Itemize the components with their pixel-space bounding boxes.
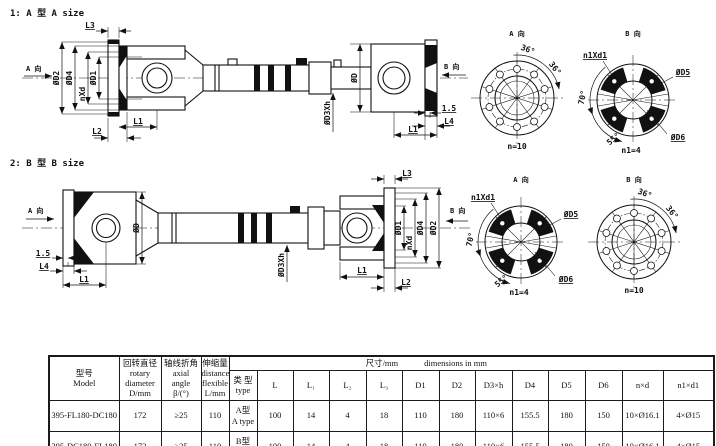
tube-section — [203, 58, 371, 94]
dim-cell: 18 — [366, 431, 402, 446]
dim-label-d6: ØD6 — [558, 274, 574, 284]
angle-label-36: 36° — [547, 60, 563, 77]
col-header-dim: D1 — [402, 370, 439, 400]
dim-label-d4: ØD4 — [415, 221, 425, 237]
dim-label-l3: L3 — [402, 169, 412, 178]
flex-header-en2: flexible — [202, 378, 229, 388]
shaft-b-drawing: A 向 1.5 L4 L1 ØD — [22, 169, 470, 292]
type-cell-en: A type — [230, 416, 257, 426]
angle-label-70: 70° — [577, 89, 589, 105]
flex-header-cn: 伸缩量 — [202, 358, 229, 368]
dim-label-l1-left: L1 — [133, 117, 143, 126]
col-header-dim: D6 — [585, 370, 622, 400]
dim-cell: 180 — [439, 400, 475, 431]
dim-cell: 155.5 — [512, 431, 548, 446]
dim-label-l2: L2 — [92, 127, 102, 136]
dim-label-d2: ØD2 — [428, 221, 438, 237]
type-cell-cn: B型 — [230, 436, 257, 446]
dim-label-d: ØD — [131, 223, 141, 234]
angle-cell: ≥25 — [161, 400, 201, 431]
col-header-dim: n1×d1 — [663, 370, 714, 400]
dim-cell: 110×6 — [475, 400, 512, 431]
dim-label-15: 1.5 — [442, 104, 457, 113]
slot-count-label: n1=4 — [509, 288, 528, 297]
flex-cell: 110 — [201, 431, 229, 446]
table-row: 395-FL180-DC180 172 ≥25 110 A型 A type 10… — [49, 400, 714, 431]
dim-cell: 4 — [329, 400, 366, 431]
view-a-arrow-label: A 向 — [26, 64, 41, 73]
model-cell: 395-FL180-DC180 — [49, 400, 119, 431]
dim-label-15: 1.5 — [36, 249, 51, 258]
col-header-dim: n×d — [622, 370, 663, 400]
drawing-sheet: 1: A 型 A size A 向 — [0, 0, 716, 446]
dim-cell: 110×6 — [475, 431, 512, 446]
dim-label-l4: L4 — [39, 262, 49, 271]
model-header-en: Model — [50, 378, 119, 388]
dim-cell: 155.5 — [512, 400, 548, 431]
rotary-header-cn: 回转直径 — [120, 358, 161, 368]
flex-header-unit: L/mm — [202, 388, 229, 398]
dim-label-l1-right: L1 — [408, 125, 418, 134]
col-header-flex-distance: 伸缩量 distance flexible L/mm — [201, 356, 229, 400]
dims-band-cn: 尺寸/mm — [366, 358, 399, 368]
right-dim-stack: ØD1 nXd ØD4 ØD2 — [393, 188, 441, 268]
rotary-header-en1: rotary — [120, 368, 161, 378]
angle-label-70: 70° — [465, 231, 477, 247]
dim-cell: 110 — [402, 431, 439, 446]
type-header-en: type — [230, 385, 257, 395]
type-cell: A型 A type — [229, 400, 257, 431]
tube-section — [158, 206, 340, 249]
rotary-cell: 172 — [119, 431, 161, 446]
dim-cell: 18 — [366, 400, 402, 431]
flex-cell: 110 — [201, 400, 229, 431]
dim-label-d5: ØD5 — [675, 67, 691, 77]
technical-drawing-svg: 1: A 型 A size A 向 — [0, 0, 716, 355]
flange-view-b1-4slots: B 向 n1Xd1 ØD5 ØD6 70° 55° n1=4 — [577, 29, 691, 155]
dim-cell: 150 — [585, 400, 622, 431]
rotary-cell: 172 — [119, 400, 161, 431]
dimensions-band-header: 尺寸/mm dimensions in mm — [229, 356, 714, 370]
dim-cell: 150 — [585, 431, 622, 446]
angle-header-unit: β/(°) — [162, 388, 201, 398]
col-header-dim: L₃ — [366, 370, 402, 400]
dim-cell: 180 — [548, 400, 585, 431]
col-header-dim: L₁ — [293, 370, 329, 400]
flex-header-en1: distance — [202, 368, 229, 378]
view-title: B 向 — [626, 175, 641, 184]
dim-cell: 110 — [402, 400, 439, 431]
col-header-type: 类 型 type — [229, 370, 257, 400]
section-1-title: 1: A 型 A size — [10, 7, 85, 19]
slot-count-dia-label: n1Xd1 — [471, 193, 495, 202]
dim-label-l4: L4 — [444, 117, 454, 126]
model-header-cn: 型号 — [50, 368, 119, 378]
col-header-dim: L₂ — [329, 370, 366, 400]
dim-label-nxd: nXd — [405, 236, 414, 251]
hole-count-label: n=10 — [507, 142, 526, 151]
dim-label-d1: ØD1 — [393, 221, 403, 237]
angle-cell: ≥25 — [161, 431, 201, 446]
col-header-axial-angle: 轴线折角 axial angle β/(°) — [161, 356, 201, 400]
flange-view-b2-10holes: B 向 36° 36° n=10 — [588, 175, 680, 295]
dim-cell: 180 — [548, 431, 585, 446]
section-2-title: 2: B 型 B size — [10, 157, 85, 169]
dim-label-d1: ØD1 — [88, 71, 98, 87]
shaft-a-drawing: A 向 — [22, 21, 468, 142]
slot-count-label: n1=4 — [621, 146, 640, 155]
dim-label-l3: L3 — [85, 21, 95, 30]
type-cell-cn: A型 — [230, 405, 257, 415]
flange-view-a2-4slots: A 向 n1Xd1 ØD5 ØD6 70° 55° n1=4 — [465, 175, 579, 297]
angle-header-cn: 轴线折角 — [162, 358, 201, 368]
dim-cell: 4 — [329, 431, 366, 446]
dim-cell: 14 — [293, 400, 329, 431]
view-title: B 向 — [625, 29, 640, 38]
dim-label-d: ØD — [349, 73, 359, 84]
col-header-rotary-diameter: 回转直径 rotary diameter D/mm — [119, 356, 161, 400]
dim-label-d5: ØD5 — [563, 209, 579, 219]
flange-view-a1-10holes: A 向 36° 36° n=10 — [471, 29, 563, 151]
dim-label-l1-left: L1 — [79, 275, 89, 284]
col-header-dim: D3×h — [475, 370, 512, 400]
dim-label-d4: ØD4 — [64, 71, 74, 87]
type-cell: B型 B type — [229, 431, 257, 446]
dim-label-d3h: ØD3Xh — [322, 101, 332, 126]
d3h-dim: ØD3Xh — [276, 245, 287, 282]
view-b-arrow-label: B 向 — [444, 62, 459, 71]
dim-label-l1-right: L1 — [357, 266, 367, 275]
angle-header-en1: axial — [162, 368, 201, 378]
right-flange-yoke — [371, 40, 437, 116]
slot-count-dia-label: n1Xd1 — [583, 51, 607, 60]
right-flange-yoke — [340, 188, 395, 268]
view-title: A 向 — [513, 175, 528, 184]
col-header-dim: L — [257, 370, 293, 400]
angle-label-36: 36° — [520, 43, 537, 56]
dim-cell: 180 — [439, 431, 475, 446]
dim-cell: 10×Ø16.1 — [622, 400, 663, 431]
view-title: A 向 — [509, 29, 524, 38]
col-header-model: 型号 Model — [49, 356, 119, 400]
view-a-arrow-label: A 向 — [28, 206, 43, 215]
col-header-dim: D2 — [439, 370, 475, 400]
dim-label-d6: ØD6 — [670, 132, 686, 142]
type-header-cn: 类 型 — [230, 375, 257, 385]
dims-band-en: dimensions in mm — [424, 358, 487, 368]
col-header-dim: D5 — [548, 370, 585, 400]
angle-header-en2: angle — [162, 378, 201, 388]
dim-label-l2: L2 — [401, 278, 411, 287]
dim-label-nxd: nXd — [78, 87, 87, 102]
angle-label-36: 36° — [664, 204, 680, 221]
dimension-table: 型号 Model 回转直径 rotary diameter D/mm 轴线折角 … — [48, 355, 715, 446]
col-header-dim: D4 — [512, 370, 548, 400]
hole-count-label: n=10 — [624, 286, 643, 295]
dim-cell: 100 — [257, 400, 293, 431]
dim-label-d3h: ØD3Xh — [276, 253, 286, 278]
view-b-arrow-label: B 向 — [450, 206, 465, 215]
dim-cell: 10×Ø16.1 — [622, 431, 663, 446]
rotary-header-unit: D/mm — [120, 388, 161, 398]
dim-label-d2: ØD2 — [51, 71, 61, 87]
table-row: 395-DC180-FL180 172 ≥25 110 B型 B type 10… — [49, 431, 714, 446]
dim-cell: 14 — [293, 431, 329, 446]
dim-cell: 4×Ø15 — [663, 431, 714, 446]
model-cell: 395-DC180-FL180 — [49, 431, 119, 446]
angle-label-36: 36° — [637, 187, 654, 200]
dim-cell: 100 — [257, 431, 293, 446]
rotary-header-en2: diameter — [120, 378, 161, 388]
dim-cell: 4×Ø15 — [663, 400, 714, 431]
